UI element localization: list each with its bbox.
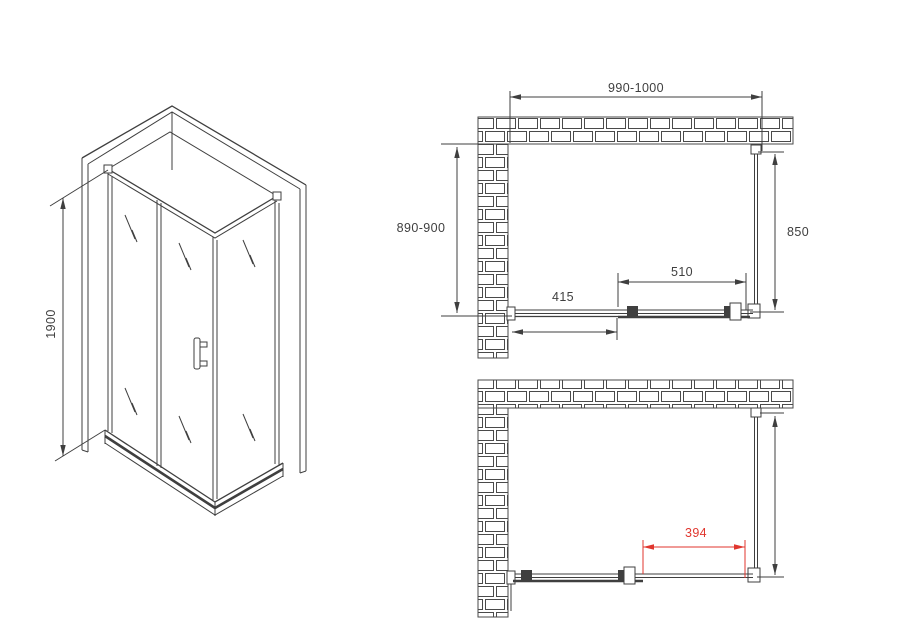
iso-top-frame	[104, 132, 281, 238]
door-width-label: 510	[671, 265, 693, 279]
corner-connector	[748, 568, 760, 582]
opening-label: 394	[685, 526, 707, 540]
door-assembly-open	[507, 567, 753, 611]
iso-view: 1900	[44, 106, 306, 516]
roller-bracket	[730, 303, 741, 320]
fixed-width-label: 415	[552, 290, 574, 304]
depth-label: 890-900	[397, 221, 446, 235]
dim-side-panel: 850	[750, 152, 809, 312]
wall-bracket	[751, 145, 761, 154]
iso-tray	[105, 430, 283, 516]
dim-side-panel-open	[757, 413, 784, 577]
iso-door-handle	[194, 338, 207, 369]
plan-view-door-closed: 990-1000 890-900 850 510	[397, 81, 809, 358]
door-roller	[627, 306, 638, 316]
side-panel-label: 850	[787, 225, 809, 239]
dim-fixed-width: 415	[512, 290, 617, 340]
brick-wall-left	[478, 144, 508, 358]
dim-door-width: 510	[618, 265, 746, 310]
iso-frame-posts	[108, 173, 279, 500]
iso-walls	[82, 106, 306, 473]
iso-glass-marks	[125, 215, 255, 443]
side-glass-panel	[748, 145, 761, 318]
brick-wall-top	[478, 380, 793, 408]
brick-wall-left	[478, 408, 508, 617]
door-roller	[521, 570, 532, 580]
dim-height: 1900	[44, 170, 108, 461]
dim-opening: 394	[643, 526, 745, 578]
brick-wall-top	[478, 117, 793, 144]
wall-profile	[507, 307, 515, 320]
height-label: 1900	[44, 309, 58, 338]
drawing-page: 1900 99	[0, 0, 900, 636]
total-width-label: 990-1000	[608, 81, 664, 95]
technical-drawing: 1900 99	[0, 0, 900, 636]
roller-bracket	[624, 567, 635, 584]
iso-corner-cap-right	[273, 192, 281, 200]
wall-bracket	[751, 408, 761, 417]
plan-view-door-open: 394	[478, 380, 793, 617]
side-glass-panel	[748, 408, 761, 582]
door-assembly-closed	[507, 303, 753, 320]
